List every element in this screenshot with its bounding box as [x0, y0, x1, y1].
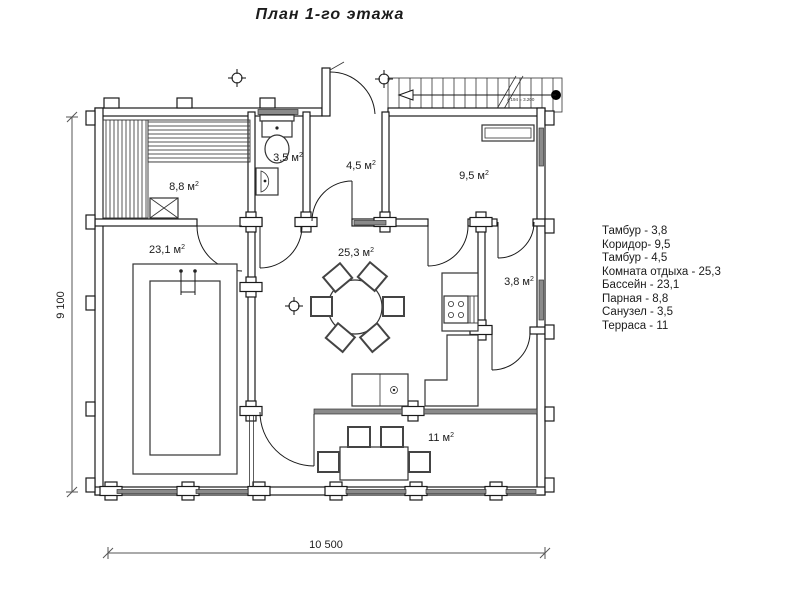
stair-note: x 194 = 3.200 — [507, 97, 535, 102]
sauna-furniture — [103, 120, 250, 218]
floor-plan-drawing: x 194 = 3.200 — [0, 0, 800, 600]
door-corridor-tambour2 — [498, 222, 534, 258]
sauna-bench-left — [103, 120, 148, 218]
dim-width-label: 10 500 — [309, 539, 343, 551]
door-bathroom — [260, 226, 302, 268]
pool — [133, 264, 237, 474]
window-pool-bottom — [196, 490, 248, 494]
label-tambur1: 4,5 м2 — [346, 160, 376, 172]
door-entry — [330, 72, 375, 114]
sink-counter — [352, 374, 408, 406]
terrace-rail — [426, 490, 486, 494]
terrace-table — [340, 447, 408, 480]
chair — [318, 452, 339, 472]
sauna-stove-icon — [150, 198, 178, 218]
lamp-icon — [228, 69, 246, 87]
stove-icon — [444, 296, 468, 323]
entry-door-leaf — [322, 68, 330, 116]
terrace-rail — [506, 490, 536, 494]
glass-wall-band — [424, 409, 537, 414]
lamp-icon — [285, 297, 303, 315]
label-tambur2: 3,8 м2 — [504, 276, 534, 288]
window-corridor-right — [539, 128, 544, 166]
lamp-icon — [375, 70, 393, 88]
door-terrace — [260, 412, 314, 466]
label-bassein: 23,1 м2 — [149, 244, 185, 256]
lounge-furniture — [311, 262, 478, 406]
chair — [311, 297, 332, 316]
window-pool-bottom — [117, 490, 177, 494]
chair — [409, 452, 430, 472]
label-sanuzel: 3,5 м2 — [273, 152, 303, 164]
dim-height-label: 9 100 — [55, 291, 67, 319]
sink-icon — [256, 168, 278, 195]
dimension-bottom: 10 500 — [103, 539, 550, 559]
window-tambour2-right — [539, 280, 544, 320]
label-komnata: 25,3 м2 — [338, 247, 374, 259]
wall-left — [95, 108, 103, 495]
chair — [383, 297, 404, 316]
stair-direction-arrow — [399, 90, 561, 100]
floor-plan-page: { "title": "План 1-го этажа", "unit_sup"… — [0, 0, 800, 600]
sauna-bench-top — [148, 120, 250, 162]
door-tambour2 — [492, 334, 530, 370]
glass-wall-band — [314, 409, 402, 414]
door-corridor — [428, 226, 468, 266]
terrace-rail — [346, 490, 406, 494]
label-koridor: 9,5 м2 — [459, 170, 489, 182]
terrace-furniture — [318, 427, 430, 480]
dimension-left: 9 100 — [55, 112, 78, 497]
oven-icon — [468, 296, 478, 323]
window-tambour1 — [354, 221, 386, 226]
window-bathroom — [258, 110, 298, 115]
chair — [381, 427, 403, 447]
corridor-bench — [482, 125, 534, 141]
door-tambour1 — [312, 181, 352, 221]
chair — [348, 427, 370, 447]
label-terrasa: 11 м2 — [428, 432, 454, 444]
kitchen-counter — [425, 273, 478, 406]
kitchen-l-counter — [425, 335, 478, 406]
label-parnaya: 8,8 м2 — [169, 181, 199, 193]
wall-top-right — [388, 108, 545, 116]
